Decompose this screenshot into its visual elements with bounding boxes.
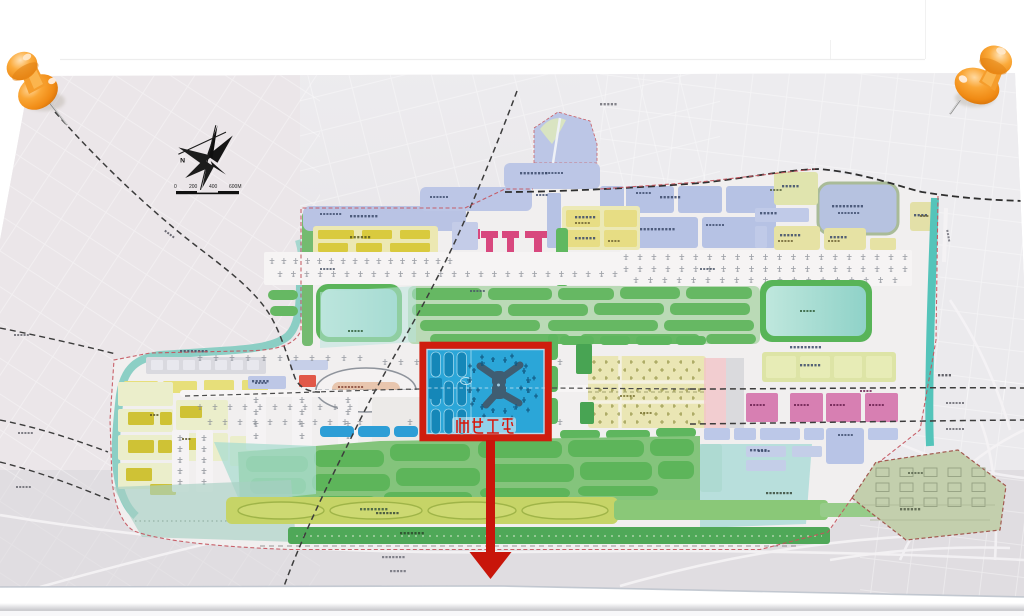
svg-text:200: 200 [189,184,198,190]
svg-text:600M: 600M [229,184,242,190]
svg-text:N: N [180,158,185,165]
svg-text:0: 0 [174,184,177,190]
svg-text:400: 400 [209,184,218,190]
